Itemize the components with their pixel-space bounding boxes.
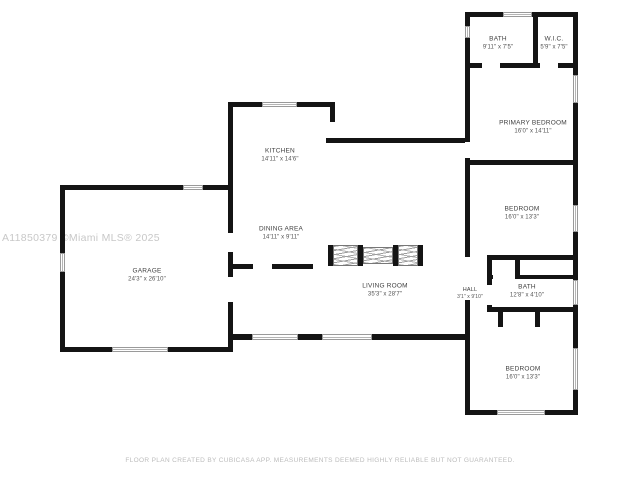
wall-segment	[533, 12, 538, 63]
counter-post	[393, 245, 398, 266]
room-dims: 5'9" x 7'5"	[540, 44, 567, 52]
window-marker	[497, 410, 545, 415]
floor-plan: A11850379 ©Miami MLS® 2025 FLOOR PLAN CR…	[0, 0, 640, 480]
room-label-bath-2: BATH 12'8" x 4'10"	[510, 284, 544, 301]
room-name: GARAGE	[128, 268, 166, 277]
room-name: HALL	[457, 287, 483, 294]
window-marker	[465, 26, 470, 38]
wall-segment	[465, 160, 578, 165]
room-dims: 14'11" x 9'11"	[259, 234, 303, 242]
wall-segment	[545, 410, 578, 415]
window-marker	[573, 348, 578, 390]
mls-watermark: A11850379 ©Miami MLS® 2025	[2, 232, 160, 244]
room-label-bedroom-2: BEDROOM 16'0" x 13'3"	[506, 366, 541, 383]
wall-segment	[60, 347, 112, 352]
wall-segment	[465, 410, 497, 415]
room-name: PRIMARY BEDROOM	[499, 120, 567, 129]
wall-segment	[498, 312, 503, 327]
room-dims: 16'0" x 13'3"	[505, 214, 540, 222]
window-marker	[60, 253, 65, 272]
wall-segment	[60, 185, 183, 190]
wall-segment	[228, 102, 262, 107]
wall-segment	[573, 103, 578, 205]
room-label-primary-bedroom: PRIMARY BEDROOM 16'0" x 14'11"	[499, 120, 567, 137]
wall-segment	[272, 264, 313, 269]
room-dims: 16'0" x 13'3"	[506, 374, 541, 382]
room-label-bedroom-1: BEDROOM 16'0" x 13'3"	[505, 206, 540, 223]
room-name: LIVING ROOM	[362, 283, 408, 292]
wall-segment	[465, 158, 470, 257]
room-dims: 3'1" x 9'10"	[457, 294, 483, 301]
window-marker	[573, 205, 578, 232]
room-label-dining-area: DINING AREA 14'11" x 9'11"	[259, 226, 303, 243]
wall-segment	[298, 334, 322, 340]
room-name: BATH	[510, 284, 544, 293]
wall-segment	[465, 63, 482, 68]
window-marker	[573, 75, 578, 103]
room-label-bath-1: BATH 9'11" x 7'5"	[483, 36, 513, 53]
room-name: BEDROOM	[506, 366, 541, 375]
wall-segment	[465, 300, 470, 415]
room-dims: 24'3" x 26'10"	[128, 276, 166, 284]
wall-segment	[518, 275, 578, 279]
room-label-living-room: LIVING ROOM 35'3" x 28'7"	[362, 283, 408, 300]
wall-segment	[535, 312, 540, 327]
window-marker	[252, 334, 298, 340]
wall-segment	[500, 63, 540, 68]
room-name: DINING AREA	[259, 226, 303, 235]
room-label-wic: W.I.C. 5'9" x 7'5"	[540, 36, 567, 53]
wall-segment	[372, 334, 470, 340]
wall-segment	[168, 347, 228, 352]
wall-segment	[326, 138, 465, 143]
room-label-hall: HALL 3'1" x 9'10"	[457, 287, 483, 301]
room-name: KITCHEN	[261, 148, 298, 157]
room-name: BEDROOM	[505, 206, 540, 215]
counter-post	[328, 245, 333, 266]
counter-hatch	[398, 245, 418, 266]
counter-hatch	[363, 247, 393, 264]
wall-segment	[573, 12, 578, 75]
wall-segment	[330, 102, 335, 122]
wall-segment	[203, 185, 228, 190]
wall-segment	[228, 102, 233, 233]
window-marker	[322, 334, 372, 340]
wall-segment	[487, 258, 492, 285]
wall-segment	[515, 255, 520, 279]
room-label-kitchen: KITCHEN 14'11" x 14'6"	[261, 148, 298, 165]
counter-post	[358, 245, 363, 266]
wall-segment	[532, 12, 578, 17]
wall-segment	[228, 334, 252, 340]
wall-segment	[228, 264, 253, 269]
garage-door-marker	[112, 347, 168, 352]
window-marker	[503, 12, 532, 17]
counter-island	[328, 245, 423, 266]
wall-segment	[487, 255, 578, 260]
cubicasa-disclaimer: FLOOR PLAN CREATED BY CUBICASA APP. MEAS…	[0, 457, 640, 464]
wall-segment	[60, 272, 65, 352]
room-label-garage: GARAGE 24'3" x 26'10"	[128, 268, 166, 285]
room-dims: 14'11" x 14'6"	[261, 156, 298, 164]
wall-segment	[465, 12, 503, 17]
wall-segment	[228, 302, 233, 352]
window-marker	[573, 280, 578, 305]
room-dims: 16'0" x 14'11"	[499, 128, 567, 136]
counter-hatch	[333, 245, 358, 266]
window-marker	[262, 102, 297, 107]
window-marker	[183, 185, 203, 190]
room-name: BATH	[483, 36, 513, 45]
room-dims: 9'11" x 7'5"	[483, 44, 513, 52]
wall-segment	[60, 185, 65, 253]
counter-post	[418, 245, 423, 266]
wall-segment	[465, 38, 470, 142]
room-dims: 35'3" x 28'7"	[362, 291, 408, 299]
room-name: W.I.C.	[540, 36, 567, 45]
room-dims: 12'8" x 4'10"	[510, 292, 544, 300]
wall-segment	[465, 12, 470, 26]
